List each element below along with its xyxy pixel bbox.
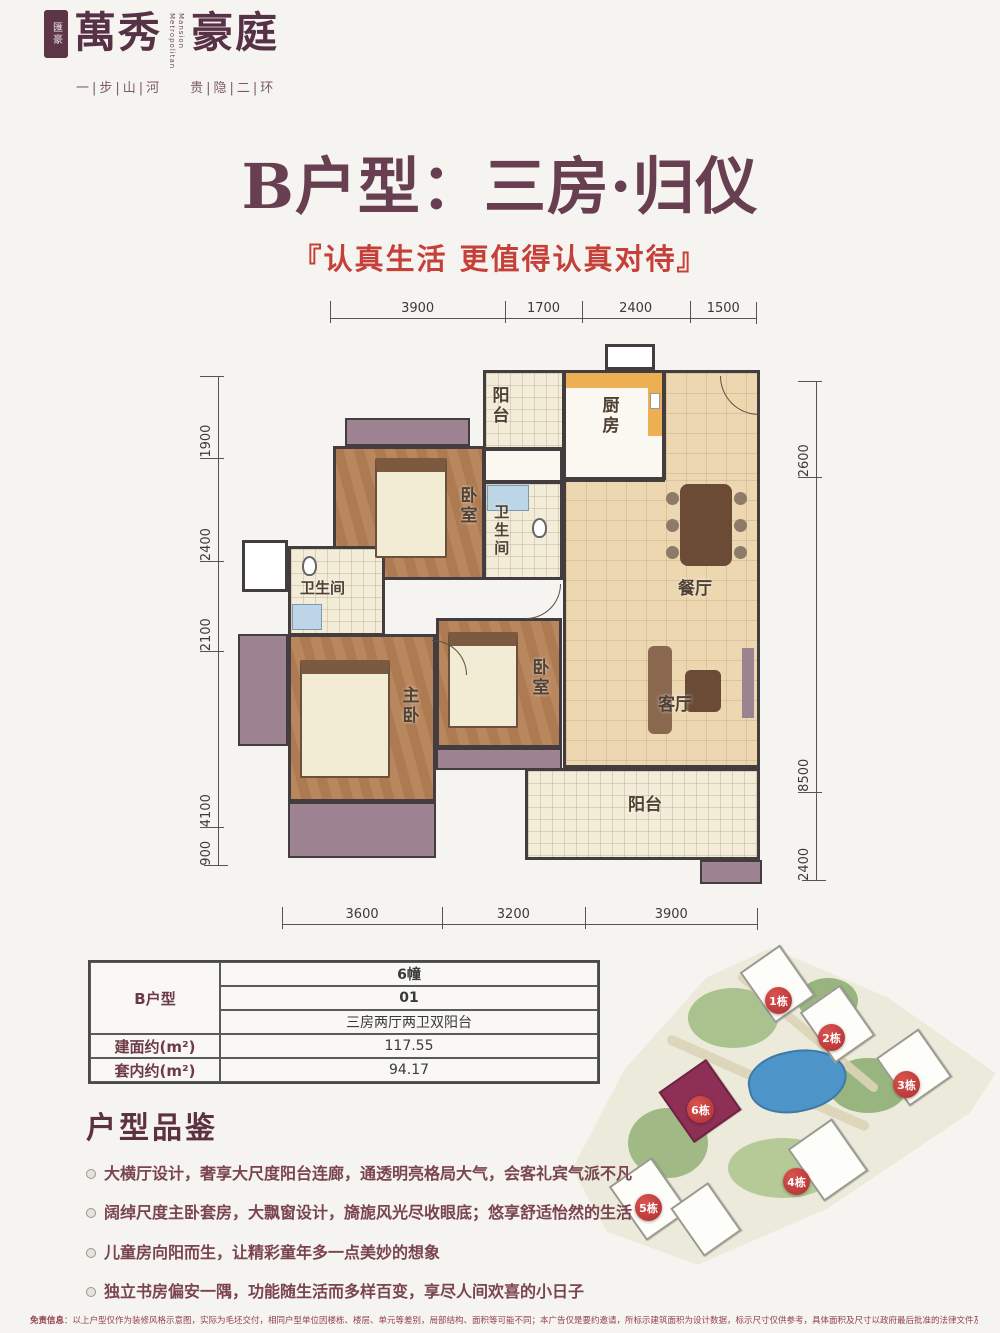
feature-text: 大横厅设计，奢享大尺度阳台连廊，通透明亮格局大气，会客礼宾气派不凡 (104, 1163, 632, 1185)
bay-window (345, 418, 470, 446)
label-balcony-bottom: 阳台 (628, 796, 662, 816)
range-hood (605, 344, 655, 370)
bullet-icon (86, 1208, 96, 1218)
feature-text: 独立书房偏安一隅，功能随生活而多样百变，享尽人间欢喜的小日子 (104, 1281, 584, 1303)
feature-item: 儿童房向阳而生，让精彩童年多一点美妙的想象 (86, 1242, 651, 1264)
spec-building: 6幢 (220, 962, 598, 986)
bay-window (288, 802, 436, 858)
label-bath-middle: 卫生间 (492, 504, 509, 558)
bay-window (238, 634, 288, 746)
disclaimer-text: ：以上户型仅作为装修风格示意图，实际为毛坯交付，相同户型单位因楼栋、楼层、单元等… (64, 1316, 978, 1326)
bed-master (300, 660, 390, 778)
label-balcony-top: 阳台 (488, 386, 508, 426)
tagline-right: 贵|隐|二|环 (190, 77, 276, 96)
label-dining: 餐厅 (678, 580, 712, 600)
kitchen-counter (566, 373, 662, 388)
brand-seal: 匯豪 (44, 10, 68, 58)
dimension-top: 3900 1700 2400 1500 (330, 300, 757, 319)
kitchen-sink (650, 393, 660, 409)
dim-segment: 2600 (798, 381, 817, 477)
brand-name-en: Metropolitan Mansion (168, 13, 185, 69)
label-living: 客厅 (658, 696, 692, 716)
spec-gross-value: 117.55 (220, 1034, 598, 1058)
bay-window (436, 748, 562, 770)
dim-segment: 2400 (200, 458, 219, 561)
label-bath-left: 卫生间 (300, 580, 345, 597)
dim-segment: 2100 (200, 561, 219, 651)
building-badge-2: 2栋 (818, 1024, 845, 1051)
dim-segment: 3200 (442, 906, 584, 925)
dim-segment: 8500 (798, 477, 817, 792)
flyer-page: 匯豪 萬秀 Metropolitan Mansion 豪庭 一|步|山|河 贵|… (0, 0, 1000, 1333)
features-section: 户型品鉴 大横厅设计，奢享大尺度阳台连廊，通透明亮格局大气，会客礼宾气派不凡 阔… (86, 1103, 651, 1321)
dimension-bottom: 3600 3200 3900 (282, 906, 758, 925)
brand-name-cn-2: 豪庭 (191, 10, 279, 56)
feature-item: 大横厅设计，奢享大尺度阳台连廊，通透明亮格局大气，会客礼宾气派不凡 (86, 1163, 651, 1185)
bullet-icon (86, 1169, 96, 1179)
dining-chair (734, 519, 747, 532)
label-kitchen: 厨房 (598, 396, 618, 436)
disclaimer: 免责信息：以上户型仅作为装修风格示意图，实际为毛坯交付，相同户型单位因楼栋、楼层… (30, 1314, 978, 1326)
bullet-icon (86, 1287, 96, 1297)
shower-tray (292, 604, 322, 630)
building-badge-3: 3栋 (893, 1071, 920, 1098)
floor-plan: 3900 1700 2400 1500 1900 2400 2100 4100 … (180, 288, 880, 958)
dining-chair (666, 492, 679, 505)
feature-text: 儿童房向阳而生，让精彩童年多一点美妙的想象 (104, 1242, 440, 1264)
dining-chair (734, 546, 747, 559)
page-title: B户型：三房·归仪 (0, 136, 1000, 226)
building-badge-1: 1栋 (765, 987, 792, 1014)
spec-layout: 三房两厅两卫双阳台 (220, 1010, 598, 1034)
dining-chair (666, 546, 679, 559)
page-slogan: 『认真生活 更值得认真对待』 (0, 236, 1000, 278)
dining-chair (666, 519, 679, 532)
features-list: 大横厅设计，奢享大尺度阳台连廊，通透明亮格局大气，会客礼宾气派不凡 阔绰尺度主卧… (86, 1163, 651, 1304)
room-utility (483, 448, 563, 483)
building-badge-4: 4栋 (783, 1168, 810, 1195)
dim-segment: 2400 (582, 300, 690, 319)
building-badge-6: 6栋 (687, 1096, 714, 1123)
dim-segment: 900 (200, 827, 219, 866)
brand-en-line2: Mansion (177, 13, 185, 69)
bed (375, 458, 447, 558)
dining-chair (734, 492, 747, 505)
label-bedroom-top: 卧室 (456, 486, 476, 526)
bay-window (700, 860, 762, 884)
disclaimer-label: 免责信息 (30, 1316, 64, 1326)
door-arc-bedroom (526, 584, 561, 619)
spec-unit-label: B户型 (90, 962, 220, 1034)
washer-unit (242, 540, 288, 592)
building-badge-5: 5栋 (635, 1194, 662, 1221)
dim-segment: 4100 (200, 651, 219, 827)
brand-tagline: 一|步|山|河 贵|隐|二|环 (76, 77, 279, 96)
toilet (302, 556, 317, 576)
dimension-left: 1900 2400 2100 4100 900 (200, 376, 222, 866)
label-master-bedroom: 主卧 (398, 686, 418, 726)
label-bedroom-bottom: 卧室 (528, 658, 548, 698)
features-heading: 户型品鉴 (86, 1103, 651, 1147)
tagline-left: 一|步|山|河 (76, 77, 162, 96)
dim-segment: 1900 (200, 376, 219, 458)
tv-cabinet (742, 648, 754, 718)
spec-net-value: 94.17 (220, 1058, 598, 1082)
bed (448, 632, 518, 728)
bullet-icon (86, 1248, 96, 1258)
toilet (532, 518, 547, 538)
brand-en-line1: Metropolitan (168, 13, 176, 69)
dim-segment: 3900 (330, 300, 505, 319)
feature-item: 独立书房偏安一隅，功能随生活而多样百变，享尽人间欢喜的小日子 (86, 1281, 651, 1303)
dining-table (680, 484, 732, 566)
dim-segment: 3900 (585, 906, 759, 925)
spec-gross-label: 建面约(m²) (90, 1034, 220, 1058)
dim-segment: 2400 (798, 792, 817, 881)
dim-segment: 1700 (505, 300, 581, 319)
feature-text: 阔绰尺度主卧套房，大飘窗设计，旖旎风光尽收眼底；悠享舒适怡然的生活 (104, 1202, 632, 1224)
brand-name-cn-1: 萬秀 (74, 10, 162, 56)
wall-segment (563, 478, 665, 482)
spec-unit-no: 01 (220, 986, 598, 1010)
brand-seal-text: 匯豪 (49, 22, 64, 46)
sofa (648, 646, 672, 734)
dimension-right: 2600 8500 2400 (798, 381, 820, 881)
dim-segment: 3600 (282, 906, 442, 925)
dim-segment: 1500 (690, 300, 757, 319)
spec-table: B户型 6幢 01 三房两厅两卫双阳台 建面约(m²) 117.55 套内约(m… (88, 960, 600, 1084)
feature-item: 阔绰尺度主卧套房，大飘窗设计，旖旎风光尽收眼底；悠享舒适怡然的生活 (86, 1202, 651, 1224)
spec-net-label: 套内约(m²) (90, 1058, 220, 1082)
brand-logo: 匯豪 萬秀 Metropolitan Mansion 豪庭 一|步|山|河 贵|… (44, 10, 279, 96)
